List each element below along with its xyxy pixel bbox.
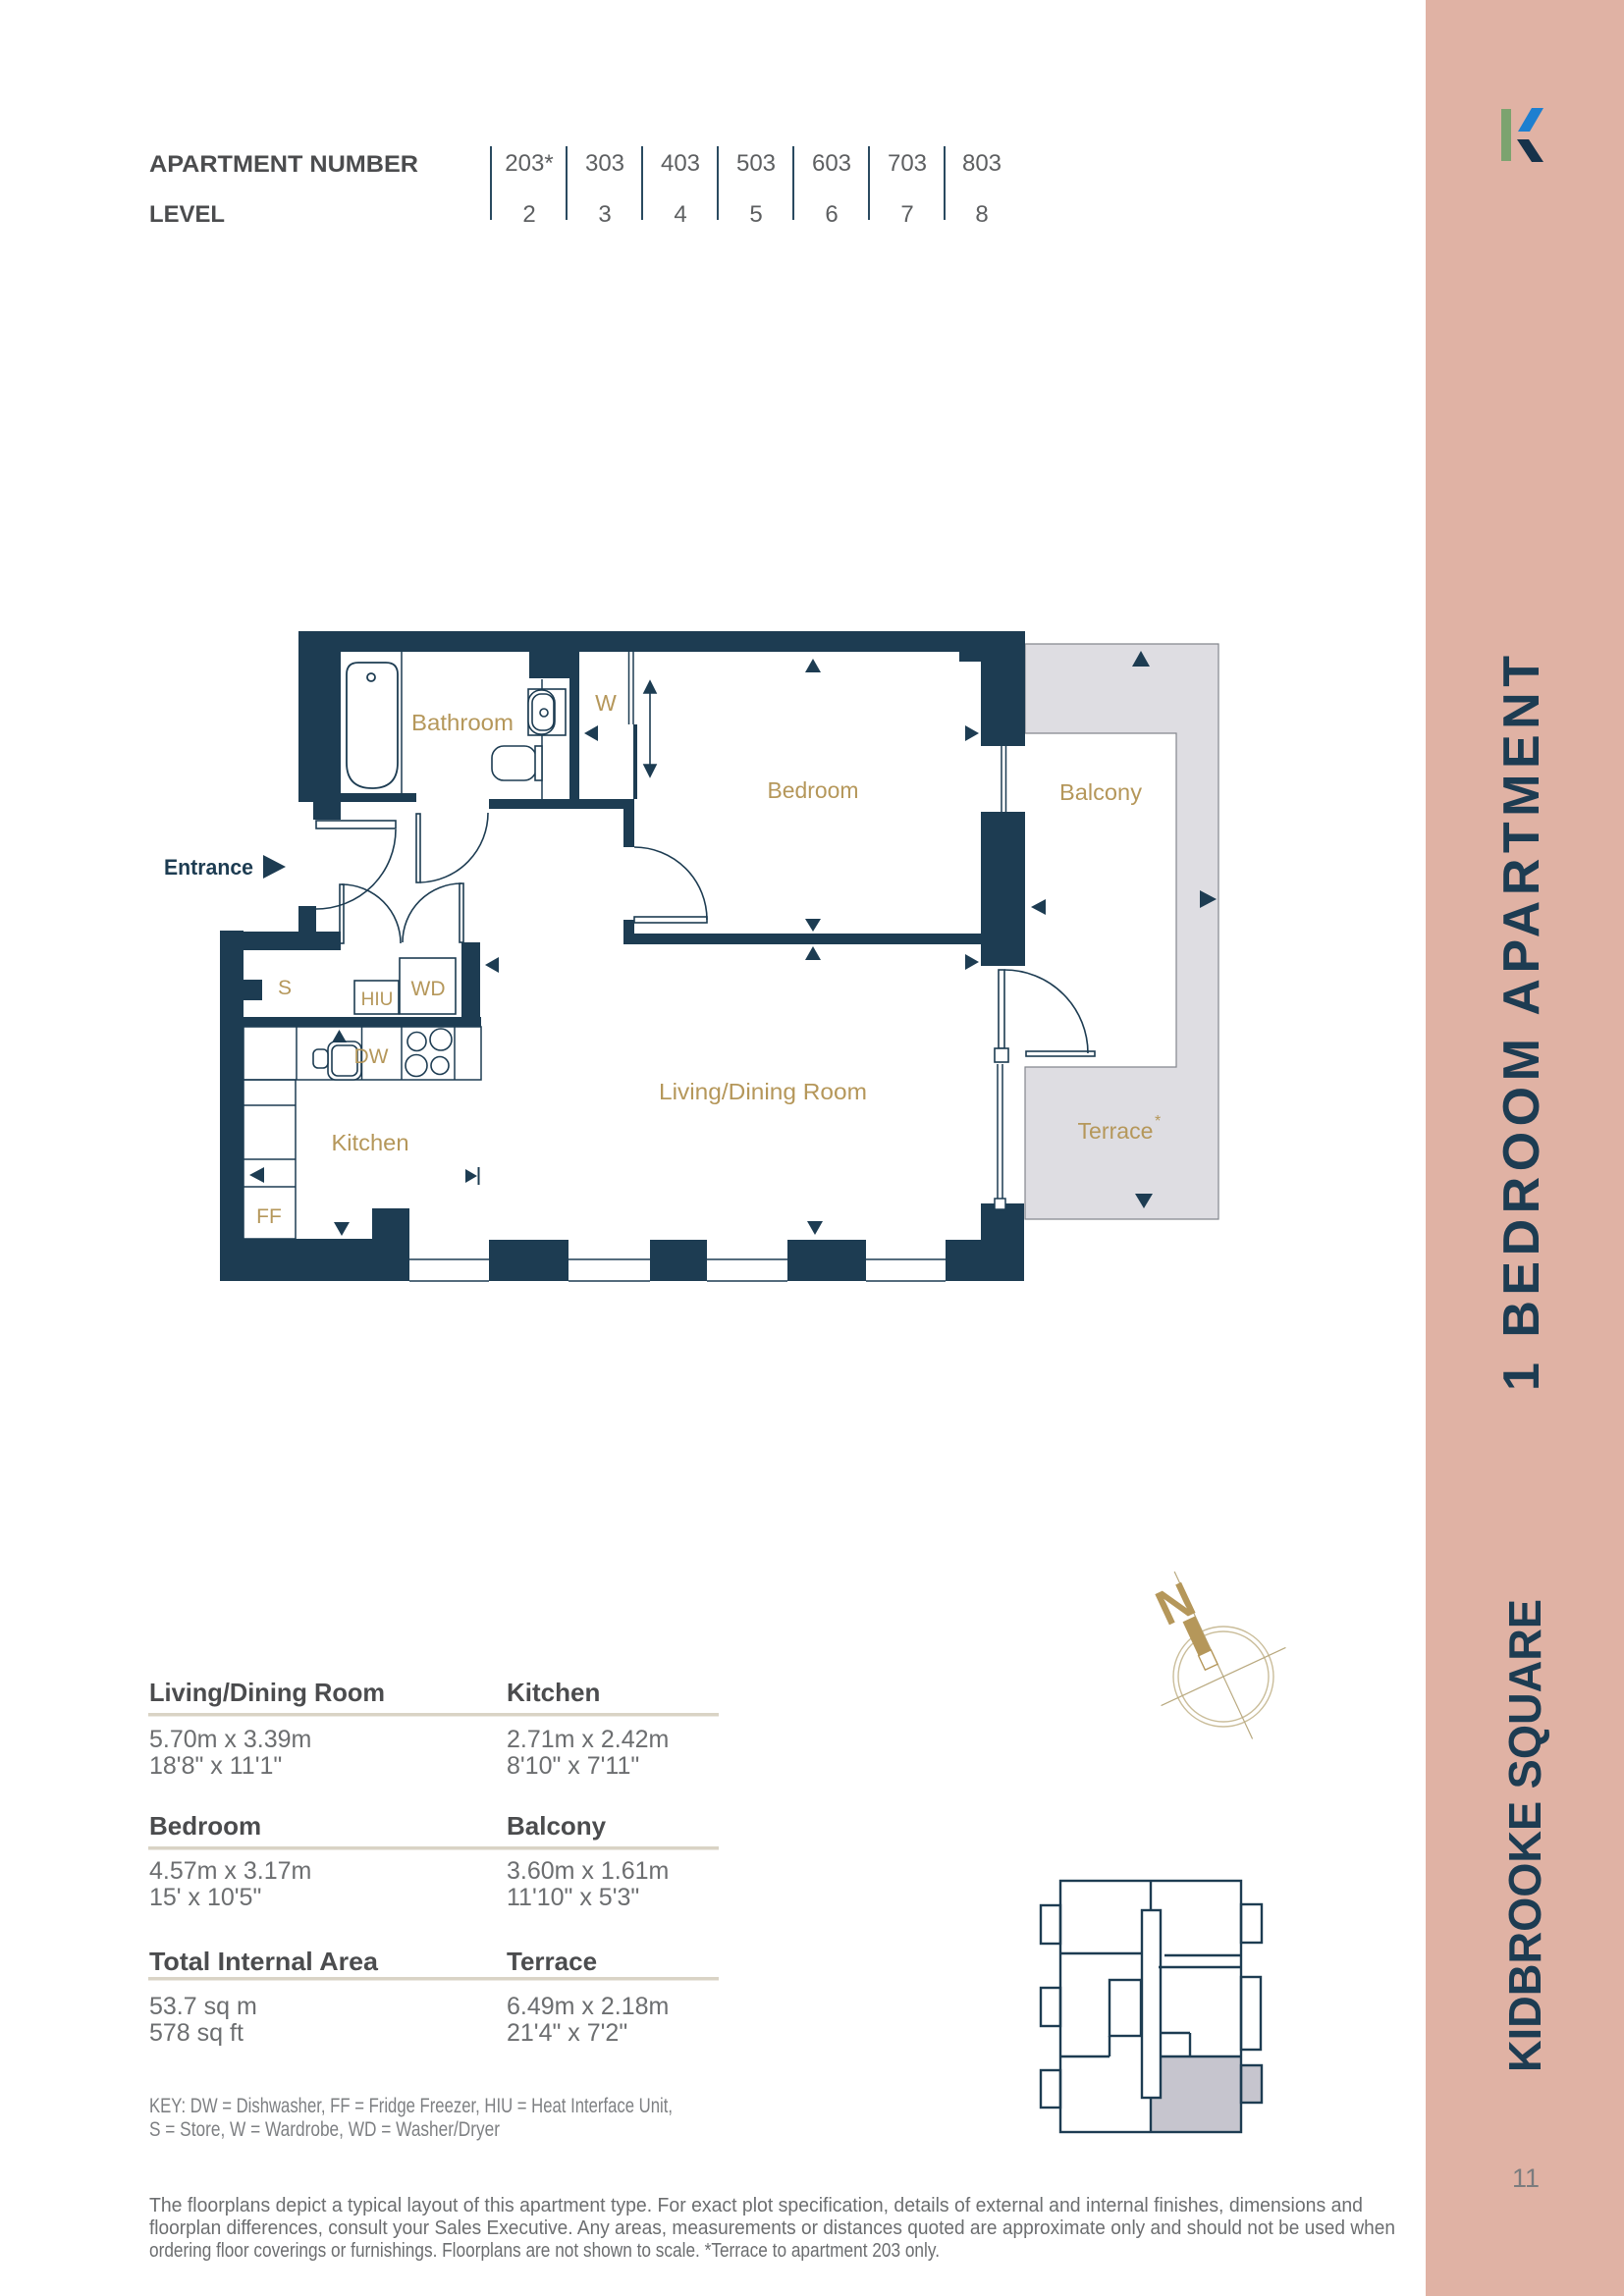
svg-text:Kitchen: Kitchen (507, 1678, 600, 1707)
svg-text:WD: WD (411, 978, 446, 1000)
svg-text:S = Store, W = Wardrobe, WD =: S = Store, W = Wardrobe, WD = Washer/Dry… (149, 2118, 500, 2141)
svg-text:Total Internal Area: Total Internal Area (149, 1947, 379, 1976)
svg-text:803: 803 (962, 150, 1001, 177)
svg-text:578 sq ft: 578 sq ft (149, 2019, 244, 2047)
svg-text:Balcony: Balcony (507, 1811, 607, 1841)
svg-text:603: 603 (812, 150, 851, 177)
svg-text:APARTMENT NUMBER: APARTMENT NUMBER (149, 151, 418, 178)
svg-text:S: S (278, 977, 292, 999)
svg-text:The floorplans depict a typica: The floorplans depict a typical layout o… (149, 2195, 1363, 2216)
svg-text:Balcony: Balcony (1059, 779, 1143, 805)
svg-text:Living/Dining Room: Living/Dining Room (149, 1678, 385, 1707)
svg-text:Entrance: Entrance (164, 855, 253, 880)
svg-text:KIDBROOKE SQUARE: KIDBROOKE SQUARE (1499, 1599, 1550, 2072)
svg-text:203*: 203* (505, 150, 553, 177)
svg-text:703: 703 (888, 150, 927, 177)
svg-text:18'8" x 11'1": 18'8" x 11'1" (149, 1752, 282, 1780)
svg-text:7: 7 (900, 201, 913, 228)
svg-text:53.7 sq m: 53.7 sq m (149, 1993, 257, 2020)
svg-text:Terrace: Terrace (507, 1947, 597, 1976)
svg-text:1 BEDROOM APARTMENT: 1 BEDROOM APARTMENT (1493, 656, 1550, 1391)
svg-text:Kitchen: Kitchen (332, 1130, 409, 1155)
svg-text:LEVEL: LEVEL (149, 201, 225, 228)
svg-text:KEY: DW = Dishwasher, FF = Fri: KEY: DW = Dishwasher, FF = Fridge Freeze… (149, 2095, 673, 2117)
svg-text:3.60m x 1.61m: 3.60m x 1.61m (507, 1857, 669, 1885)
svg-text:3: 3 (598, 201, 611, 228)
svg-text:15' x 10'5": 15' x 10'5" (149, 1884, 261, 1911)
svg-text:W: W (595, 690, 617, 716)
svg-text:FF: FF (256, 1205, 282, 1228)
svg-text:11: 11 (1512, 2163, 1540, 2193)
svg-text:21'4" x 7'2": 21'4" x 7'2" (507, 2019, 627, 2047)
svg-text:8: 8 (975, 201, 988, 228)
svg-text:11'10" x 5'3": 11'10" x 5'3" (507, 1884, 639, 1911)
svg-text:DW: DW (354, 1045, 389, 1068)
svg-text:ordering floor coverings or fu: ordering floor coverings or furnishings.… (149, 2240, 940, 2262)
svg-text:503: 503 (736, 150, 776, 177)
svg-text:5.70m x 3.39m: 5.70m x 3.39m (149, 1726, 311, 1753)
svg-text:303: 303 (585, 150, 624, 177)
svg-text:Terrace: Terrace (1078, 1118, 1154, 1144)
svg-text:Bedroom: Bedroom (768, 777, 859, 803)
svg-text:Bedroom: Bedroom (149, 1811, 261, 1841)
svg-text:8'10" x 7'11": 8'10" x 7'11" (507, 1752, 639, 1780)
svg-text:2.71m x 2.42m: 2.71m x 2.42m (507, 1726, 669, 1753)
svg-text:4: 4 (674, 201, 686, 228)
svg-text:6: 6 (825, 201, 838, 228)
svg-text:HIU: HIU (361, 989, 394, 1010)
svg-text:floorplan differences, consult: floorplan differences, consult your Sale… (149, 2217, 1395, 2239)
svg-text:6.49m x 2.18m: 6.49m x 2.18m (507, 1993, 669, 2020)
svg-text:*: * (1155, 1113, 1161, 1130)
svg-text:403: 403 (661, 150, 700, 177)
svg-text:4.57m x 3.17m: 4.57m x 3.17m (149, 1857, 311, 1885)
svg-text:5: 5 (749, 201, 762, 228)
svg-text:Bathroom: Bathroom (411, 710, 514, 735)
svg-text:2: 2 (522, 201, 535, 228)
svg-text:Living/Dining Room: Living/Dining Room (659, 1079, 867, 1104)
